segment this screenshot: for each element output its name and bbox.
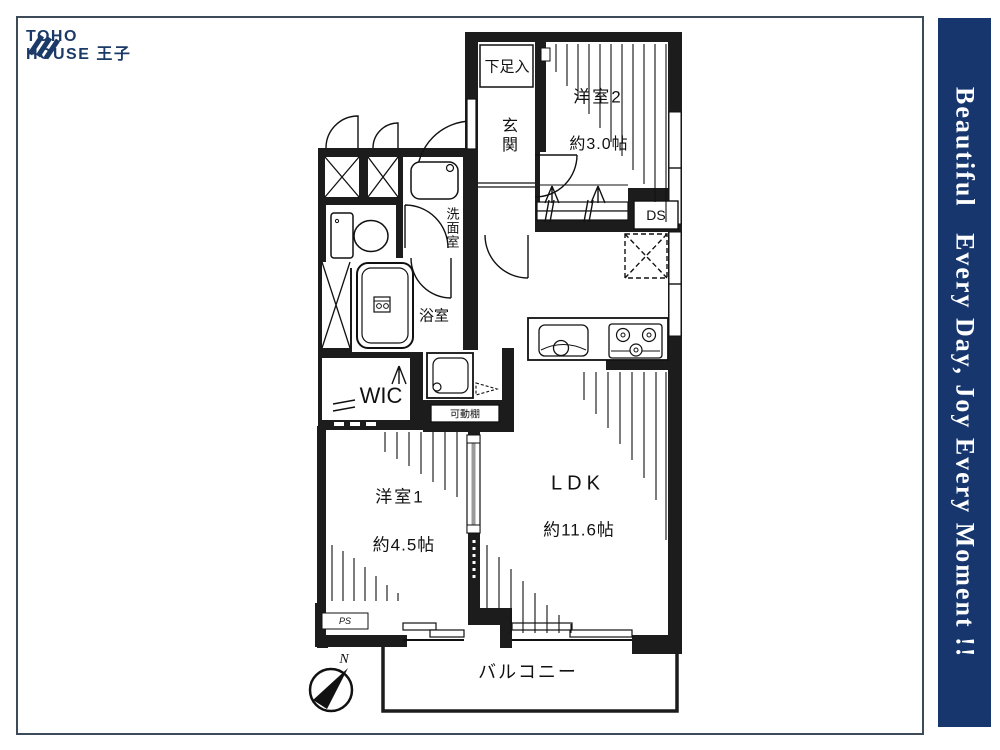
floorplan-drawing — [0, 0, 1000, 750]
label-movable-shelf: 可動棚 — [450, 406, 480, 421]
label-bedroom2-size: 約3.0帖 — [569, 130, 628, 154]
label-duct-space: DS — [646, 207, 665, 223]
label-north: N — [339, 652, 348, 668]
compass-icon — [310, 668, 352, 711]
stove-icon — [609, 324, 662, 358]
label-ldk: LDK — [551, 473, 605, 496]
bathtub-icon — [357, 263, 413, 348]
label-washroom: 洗面室 — [443, 207, 462, 249]
label-ldk-size: 約11.6帖 — [543, 516, 615, 541]
label-wic: WIC — [360, 383, 403, 409]
label-entrance: 玄関 — [495, 117, 519, 155]
sink-icon — [411, 162, 458, 199]
label-bedroom1: 洋室1 — [375, 483, 424, 508]
label-bedroom1-size: 約4.5帖 — [373, 531, 436, 556]
label-bathroom: 浴室 — [419, 305, 449, 326]
kitchen-counter — [528, 318, 668, 360]
label-bedroom2: 洋室2 — [573, 83, 622, 108]
label-pipe-space: PS — [339, 616, 351, 626]
label-balcony: バルコニー — [478, 658, 578, 684]
label-shoe-cabinet: 下足入 — [484, 56, 529, 77]
floorplan-page: TOHO HOUSE 王子 Beautiful Every Day, Joy E… — [0, 0, 1000, 750]
